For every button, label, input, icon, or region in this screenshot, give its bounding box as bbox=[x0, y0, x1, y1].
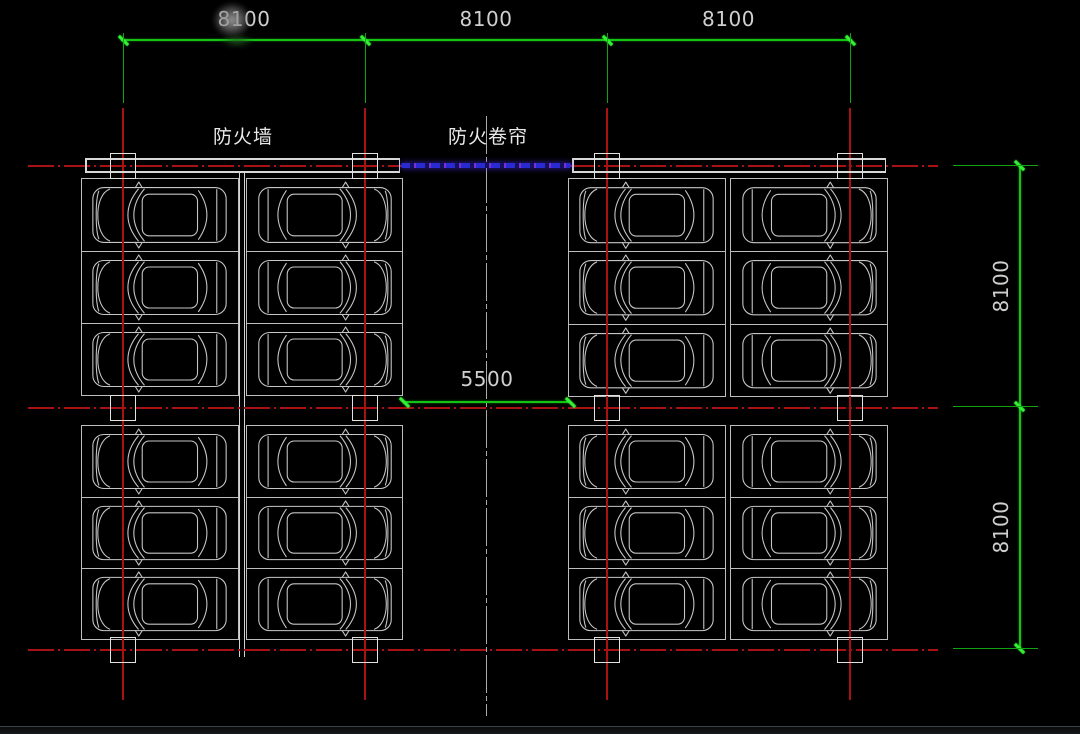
right-dimension-label: 8100 bbox=[990, 236, 1012, 336]
dimension-extension-line bbox=[953, 648, 1038, 649]
right-dimension-label: 8100 bbox=[990, 477, 1012, 577]
cad-canvas: 810081008100 81008100 5500 防火墙 防火卷帘 bbox=[0, 0, 1080, 734]
blur-artifact bbox=[212, 2, 252, 38]
fire-wall-label: 防火墙 bbox=[183, 122, 303, 149]
dimension-extension-line bbox=[953, 406, 1038, 407]
blur-artifact bbox=[220, 34, 254, 48]
dimension-extension-line bbox=[953, 165, 1038, 166]
aisle-dimension-label: 5500 bbox=[437, 368, 537, 390]
window-bottom-strip bbox=[0, 726, 1080, 734]
fire-shutter-label: 防火卷帘 bbox=[428, 122, 548, 149]
right-dimension-layer: 81008100 bbox=[0, 0, 1080, 734]
aisle-dimension-line bbox=[404, 401, 570, 403]
